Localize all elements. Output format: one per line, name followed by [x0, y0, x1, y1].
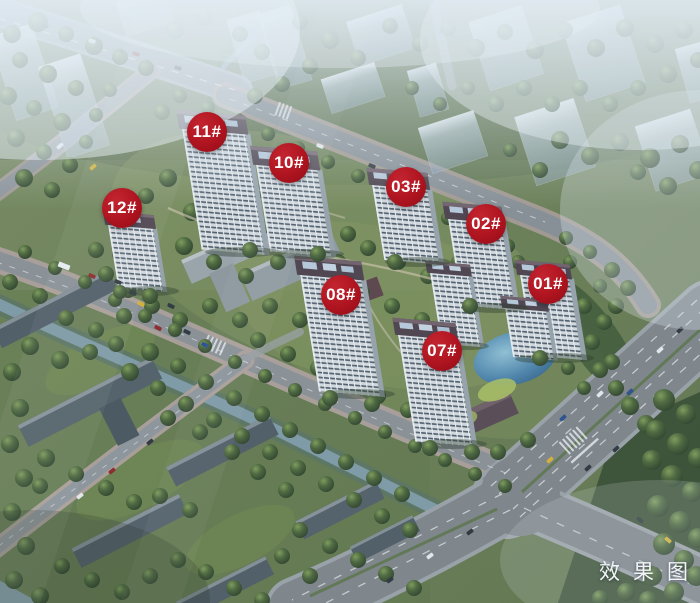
building-label-11: 11# — [187, 112, 227, 152]
aerial-masterplan-rendering: 11# 10# 12# 03# 02# 01# 08# 07# 效果图 — [0, 0, 700, 603]
building-label-07: 07# — [422, 331, 462, 371]
building-label-12: 12# — [102, 188, 142, 228]
building-label-10: 10# — [269, 143, 309, 183]
building-label-08: 08# — [321, 275, 361, 315]
building-label-03: 03# — [386, 167, 426, 207]
building-label-02: 02# — [466, 204, 506, 244]
watermark-text: 效果图 — [599, 562, 700, 583]
building-label-01: 01# — [528, 264, 568, 304]
